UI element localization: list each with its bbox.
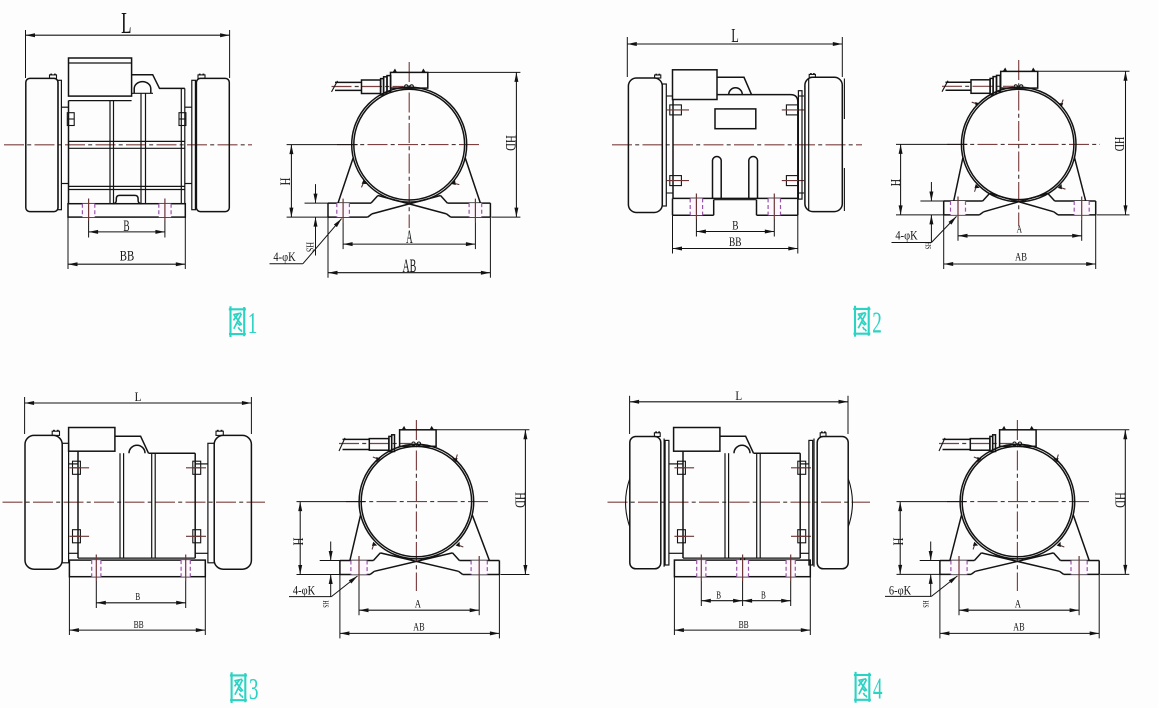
svg-text:BB: BB (739, 619, 749, 630)
svg-text:L: L (135, 389, 142, 404)
svg-text:B: B (761, 589, 766, 600)
svg-text:4: 4 (873, 671, 883, 706)
svg-text:H: H (890, 538, 907, 546)
svg-text:2: 2 (872, 305, 882, 340)
svg-text:A: A (1015, 598, 1022, 611)
svg-text:HD: HD (503, 135, 520, 151)
svg-text:1: 1 (248, 305, 258, 340)
svg-text:6-φK: 6-φK (889, 583, 912, 597)
svg-text:B: B (716, 589, 721, 600)
svg-text:BB: BB (120, 247, 135, 264)
svg-text:A: A (406, 228, 413, 248)
svg-text:L: L (731, 24, 739, 47)
svg-text:BB: BB (729, 236, 741, 250)
svg-text:H: H (277, 178, 294, 186)
svg-text:AB: AB (413, 621, 425, 634)
svg-text:4-φK: 4-φK (895, 228, 918, 242)
svg-text:3: 3 (249, 671, 259, 706)
svg-text:4-φK: 4-φK (293, 583, 316, 597)
svg-text:BB: BB (134, 619, 144, 630)
svg-text:L: L (735, 388, 742, 403)
svg-text:AB: AB (402, 256, 416, 277)
svg-text:H: H (290, 538, 307, 546)
svg-text:H: H (888, 179, 904, 186)
svg-text:AB: AB (1013, 621, 1025, 634)
svg-text:4-φK: 4-φK (273, 250, 296, 264)
svg-text:L: L (121, 7, 131, 40)
svg-text:HD: HD (1112, 137, 1128, 152)
svg-text:HD: HD (1112, 492, 1129, 508)
svg-text:AB: AB (1015, 251, 1027, 264)
svg-text:A: A (415, 598, 422, 611)
svg-text:B: B (135, 591, 140, 602)
svg-text:B: B (123, 218, 129, 235)
svg-text:B: B (732, 219, 738, 233)
svg-text:A: A (1017, 223, 1023, 234)
svg-text:HS: HS (921, 600, 930, 607)
svg-text:HS: HS (923, 242, 932, 249)
svg-text:HS: HS (321, 600, 330, 607)
svg-text:HD: HD (512, 492, 529, 508)
